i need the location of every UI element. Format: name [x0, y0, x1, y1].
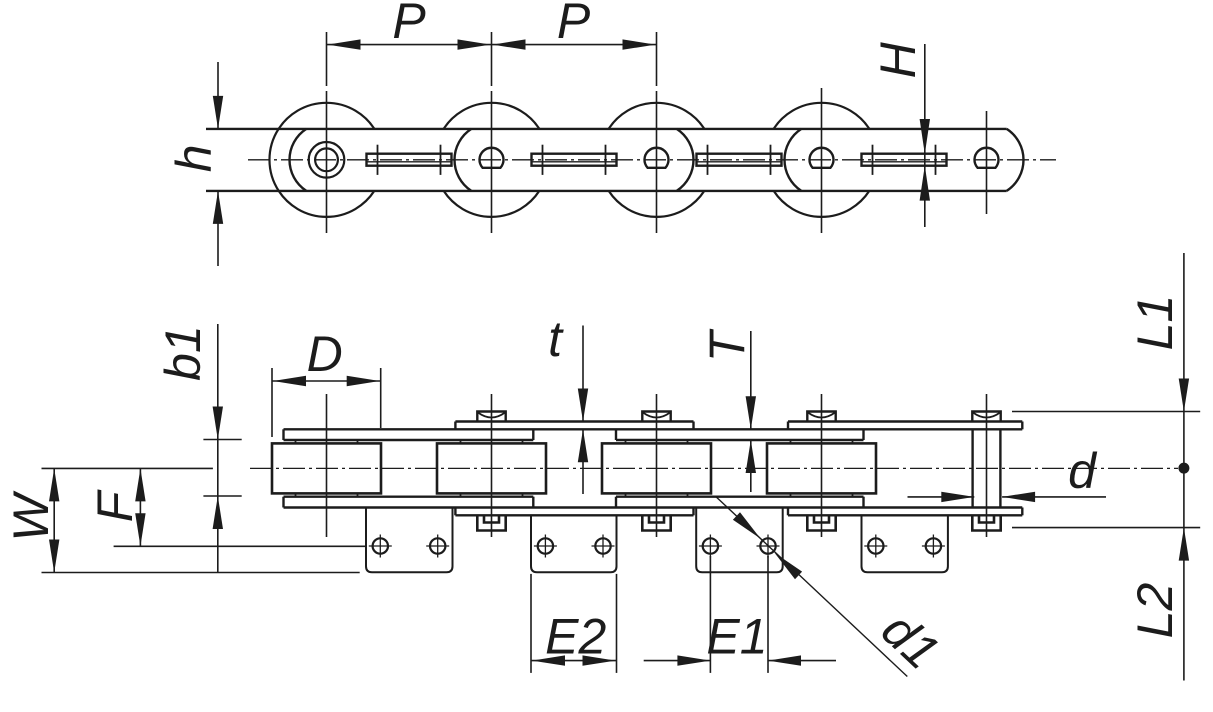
svg-text:h: h [166, 144, 222, 172]
svg-text:D: D [307, 326, 343, 382]
svg-text:E1: E1 [706, 609, 767, 665]
svg-text:W: W [3, 490, 59, 542]
svg-text:E2: E2 [545, 609, 606, 665]
svg-text:L1: L1 [1127, 295, 1183, 351]
svg-text:t: t [548, 311, 564, 367]
svg-text:H: H [870, 41, 926, 78]
svg-text:d: d [1068, 443, 1098, 499]
svg-text:P: P [557, 0, 591, 49]
svg-text:T: T [699, 328, 755, 362]
svg-text:L2: L2 [1127, 583, 1183, 639]
svg-text:F: F [87, 489, 143, 522]
svg-text:P: P [392, 0, 426, 49]
svg-text:b1: b1 [155, 325, 211, 381]
